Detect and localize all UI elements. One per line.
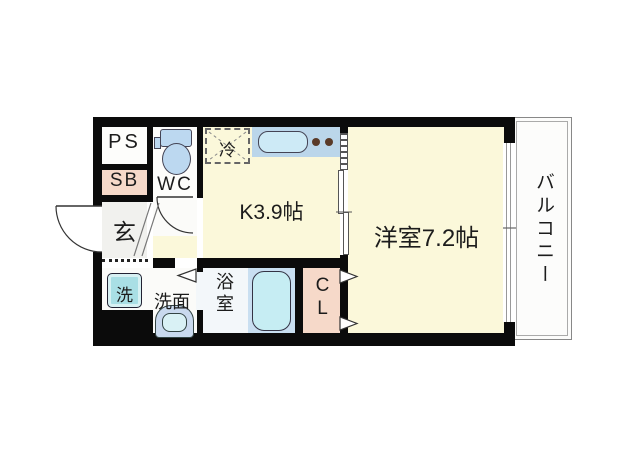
vent-hatch-strip: [340, 133, 348, 170]
toilet-bowl-icon: [162, 143, 191, 175]
wall-right-lower: [504, 322, 515, 346]
wall-sb-bottom: [93, 195, 153, 202]
kitchen-label: K3.9帖: [203, 196, 340, 226]
hall-floor-kitchen-side: [153, 236, 197, 258]
wall-kitchen-bottom: [197, 258, 348, 268]
wall-kitchen-main-bottom: [340, 255, 348, 333]
wall-right-upper: [504, 117, 515, 143]
wall-bath-closet-divider: [295, 258, 303, 333]
kitchen-sink-icon: [258, 131, 308, 153]
bathroom-label: 浴室: [211, 272, 237, 316]
western-room-label: 洋室7.2帖: [348, 218, 505, 253]
wall-top: [93, 117, 515, 127]
floorplan: PS SB WC 玄 冷 K3.9帖 洋室7.2帖 洗 洗面 浴室 CL バルコ…: [0, 0, 640, 470]
entrance-label: 玄: [102, 213, 147, 247]
toilet-handle-icon: [154, 137, 161, 149]
sink-basin-inner: [162, 313, 187, 332]
bathtub-icon: [252, 271, 291, 331]
wall-kitchen-main-top: [340, 117, 348, 133]
ps-label: PS: [102, 131, 147, 154]
shoe-box-label: SB: [102, 170, 147, 192]
entrance-step-line: [102, 259, 148, 262]
balcony-label: バルコニー: [530, 172, 557, 287]
entrance-door-arc: [56, 206, 102, 252]
wc-label: WC: [150, 174, 200, 196]
refrigerator-label: 冷: [205, 136, 250, 161]
stove-burner-icon: [325, 138, 333, 146]
stove-burner-icon: [312, 138, 320, 146]
washer-label: 洗: [107, 281, 142, 306]
wall-bottom-left-block: [93, 310, 153, 346]
wall-left-upper: [93, 117, 102, 206]
wall-washroom-top: [153, 258, 175, 268]
closet-label: CL: [311, 275, 333, 321]
vanity-label: 洗面: [144, 288, 200, 314]
